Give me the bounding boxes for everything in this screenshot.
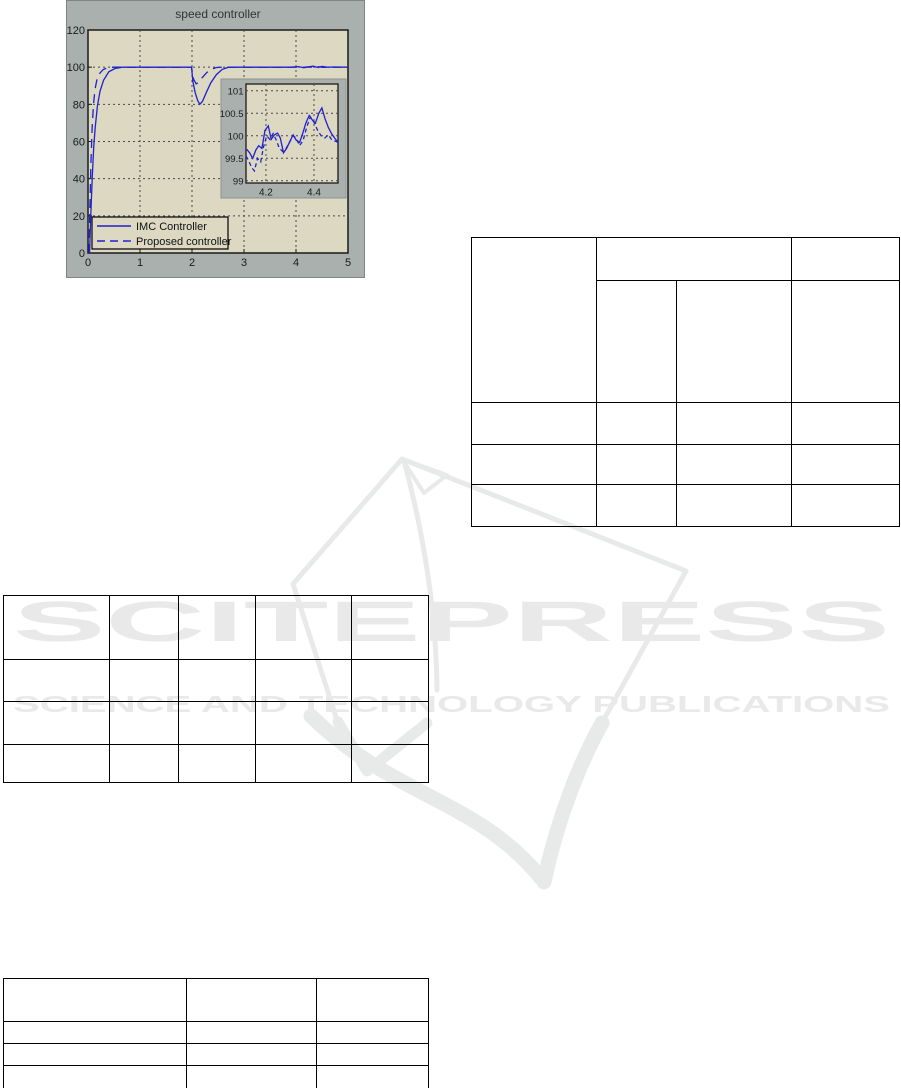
x-tick-label: 5 (345, 257, 351, 269)
cell (4, 1022, 187, 1044)
cell (597, 485, 677, 527)
cell (110, 745, 179, 783)
logo-big-check-right (544, 723, 602, 882)
cell (352, 596, 429, 660)
chart-title: speed controller (175, 7, 260, 21)
cell (792, 281, 900, 403)
y-tick-label: 40 (73, 174, 85, 186)
cell (597, 238, 792, 281)
cell (256, 745, 352, 783)
cell (352, 745, 429, 783)
cell (472, 238, 597, 403)
y-tick-label: 100 (67, 62, 85, 74)
table-middle-left (3, 595, 429, 783)
x-tick-label: 1 (137, 257, 143, 269)
cell (677, 445, 792, 485)
cell (792, 238, 900, 281)
table-bottom-left (3, 978, 429, 1088)
cell (187, 979, 317, 1022)
cell (256, 702, 352, 745)
legend-label: IMC Controller (136, 221, 207, 233)
cell (110, 596, 179, 660)
cell (4, 660, 110, 702)
x-tick-label: 2 (189, 257, 195, 269)
y-tick-label: 80 (73, 99, 85, 111)
paper-page: SCITEPRESS SCIENCE AND TECHNOLOGY PUBLIC… (0, 0, 901, 1088)
y-tick-label: 120 (67, 25, 85, 37)
y-tick-label: 20 (73, 211, 85, 223)
cell (352, 702, 429, 745)
cell (317, 1044, 429, 1066)
y-tick-label: 60 (73, 137, 85, 149)
cell (472, 485, 597, 527)
cell (187, 1066, 317, 1088)
cell (4, 745, 110, 783)
inset-y-tick-label: 101 (228, 86, 244, 97)
cell (187, 1022, 317, 1044)
inset-y-tick-label: 99.5 (225, 154, 244, 165)
cell (472, 403, 597, 445)
cell (317, 979, 429, 1022)
inset-x-tick-label: 4.4 (307, 188, 321, 199)
cell (597, 403, 677, 445)
cell (256, 596, 352, 660)
cell (4, 596, 110, 660)
cell (317, 1066, 429, 1088)
cell (597, 281, 677, 403)
table-top-right (471, 237, 900, 527)
cell (677, 281, 792, 403)
inset-x-tick-label: 4.2 (259, 188, 273, 199)
x-tick-label: 4 (293, 257, 299, 269)
cell (792, 445, 900, 485)
cell (4, 979, 187, 1022)
cell (179, 745, 256, 783)
cell (110, 702, 179, 745)
inset-plot-area (246, 84, 338, 183)
cell (4, 702, 110, 745)
cell (179, 660, 256, 702)
inset-y-tick-label: 100 (228, 131, 244, 142)
inset-y-tick-label: 100.5 (220, 109, 244, 120)
cell (352, 660, 429, 702)
x-tick-label: 3 (241, 257, 247, 269)
cell (677, 485, 792, 527)
x-tick-label: 0 (85, 257, 91, 269)
speed-controller-chart: speed controller 012345020406080100120 I… (66, 0, 365, 278)
cell (317, 1022, 429, 1044)
cell (677, 403, 792, 445)
cell (179, 702, 256, 745)
cell (597, 445, 677, 485)
cell (256, 660, 352, 702)
cell (472, 445, 597, 485)
cell (4, 1066, 187, 1088)
cell (792, 403, 900, 445)
inset-y-tick-label: 99 (233, 176, 244, 187)
y-tick-label: 0 (79, 248, 85, 260)
cell (4, 1044, 187, 1066)
cell (792, 485, 900, 527)
cell (187, 1044, 317, 1066)
legend-label: Proposed controller (136, 236, 232, 248)
cell (110, 660, 179, 702)
cell (179, 596, 256, 660)
